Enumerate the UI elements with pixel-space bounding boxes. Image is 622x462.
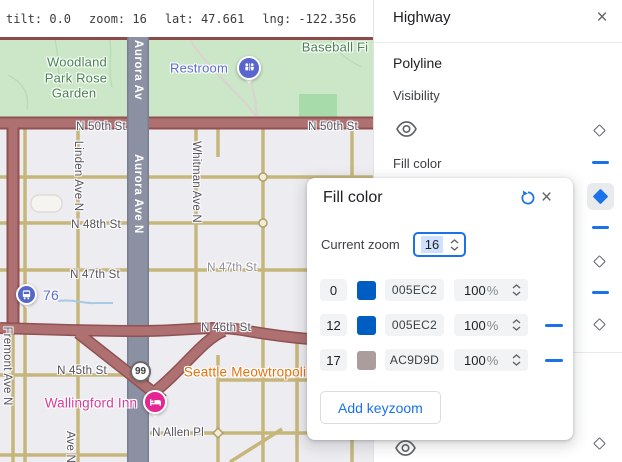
street-label-n50th-right: N 50th St <box>308 121 358 133</box>
opacity-value[interactable]: 100 <box>464 283 486 298</box>
dialog-title: Fill color <box>323 189 517 207</box>
highway-99-shield: 99 <box>130 361 151 382</box>
highway-99-number: 99 <box>135 366 146 377</box>
status-lng: lng: -122.356 <box>262 12 356 26</box>
street-label-n48th: N 48th St <box>71 219 121 231</box>
fill-color-dialog: Fill color × Current zoom 16 <box>307 178 573 440</box>
visibility-eye-icon-bottom[interactable] <box>393 439 417 459</box>
polyline-section-label: Polyline <box>393 55 442 71</box>
visibility-label: Visibility <box>393 88 440 103</box>
color-swatch[interactable] <box>357 316 376 335</box>
keyzoom-dash-icon[interactable] <box>592 291 609 294</box>
opacity-value[interactable]: 100 <box>464 353 486 368</box>
chevron-down-icon[interactable] <box>512 361 521 366</box>
street-label-n-allen: N Allen Pl <box>152 427 204 439</box>
fill-color-label: Fill color <box>393 156 441 171</box>
add-keyzoom-button[interactable]: Add keyzoom <box>320 391 441 424</box>
hex-value-chip[interactable]: 005EC2 <box>385 314 444 336</box>
street-label-ave-n: Ave N <box>64 431 76 462</box>
chevron-up-icon[interactable] <box>512 354 521 359</box>
restroom-icon <box>237 56 261 80</box>
panel-header-divider <box>374 42 622 43</box>
opacity-chip[interactable]: 100 % <box>454 349 528 371</box>
status-zoom: zoom: 16 <box>89 12 147 26</box>
street-label-n47th-right: N 47th St <box>207 262 257 274</box>
hex-value-chip[interactable]: 005EC2 <box>385 279 444 301</box>
keyzoom-rows: 0 005EC2 100 % 12 005EC2 <box>320 279 563 384</box>
remove-keyzoom-button[interactable] <box>545 324 563 327</box>
keyzoom-level-chip[interactable]: 17 <box>320 349 347 371</box>
bus-icon <box>16 284 37 305</box>
hex-value-chip[interactable]: AC9D9D <box>385 349 444 371</box>
panel-close-icon[interactable]: × <box>590 6 614 30</box>
keyframe-diamond-icon[interactable] <box>593 437 606 450</box>
street-label-aurora-mid: Aurora Ave N <box>132 154 144 234</box>
street-label-n46th: N 46th St <box>201 322 251 334</box>
street-label-whitman: Whitman Ave N <box>190 141 202 223</box>
current-zoom-row: Current zoom 16 <box>321 232 466 257</box>
keyframe-diamond-icon[interactable] <box>593 124 606 137</box>
current-zoom-label: Current zoom <box>321 237 400 252</box>
map-style-editor: tilt: 0.0 zoom: 16 lat: 47.661 lng: -122… <box>0 0 622 462</box>
street-label-n47th-left: N 47th St <box>70 269 120 281</box>
street-label-aurora-top: Aurora Av <box>132 40 144 100</box>
percent-sign: % <box>487 283 499 298</box>
status-lat: lat: 47.661 <box>165 12 244 26</box>
keyzoom-dash-icon[interactable] <box>592 226 609 229</box>
bed-icon <box>143 390 167 414</box>
color-swatch[interactable] <box>357 351 376 370</box>
restroom-pin[interactable] <box>237 56 261 80</box>
percent-sign: % <box>487 318 499 333</box>
keyzoom-level-chip[interactable]: 0 <box>320 279 347 301</box>
opacity-value[interactable]: 100 <box>464 318 486 333</box>
street-label-linden: Linden Ave N <box>72 141 84 212</box>
dialog-header: Fill color × <box>307 178 573 218</box>
chevron-up-icon[interactable] <box>450 239 459 244</box>
keyframe-diamond-icon[interactable] <box>593 255 606 268</box>
park-label-line2: Park Rose <box>45 71 108 86</box>
percent-sign: % <box>487 353 499 368</box>
chevron-up-icon[interactable] <box>512 319 521 324</box>
keyzoom-row: 0 005EC2 100 % <box>320 279 563 301</box>
opacity-chip[interactable]: 100 % <box>454 314 528 336</box>
current-zoom-value[interactable]: 16 <box>421 236 443 253</box>
park-label-line3: Garden <box>52 86 97 101</box>
dialog-close-icon[interactable]: × <box>539 187 561 209</box>
camera-status-bar: tilt: 0.0 zoom: 16 lat: 47.661 lng: -122… <box>0 0 373 37</box>
keyzoom-level-chip[interactable]: 12 <box>320 314 347 336</box>
chevron-down-icon[interactable] <box>450 246 459 251</box>
keyframe-diamond-icon[interactable] <box>593 318 606 331</box>
cat-cafe-label: Seattle Meowtropoli <box>184 365 306 380</box>
street-label-fremont: Fremont Ave N <box>1 326 13 405</box>
park-label-line1: Woodland <box>47 55 107 70</box>
reset-icon[interactable] <box>517 187 539 209</box>
opacity-chip[interactable]: 100 % <box>454 279 528 301</box>
chevron-down-icon[interactable] <box>512 291 521 296</box>
street-label-n45th: N 45th St <box>57 365 107 377</box>
color-swatch[interactable] <box>357 281 376 300</box>
restroom-label: Restroom <box>170 61 228 76</box>
keyzoom-dash-icon[interactable] <box>592 161 609 164</box>
bus-route-label: 76 <box>43 287 59 303</box>
chevron-up-icon[interactable] <box>512 284 521 289</box>
remove-keyzoom-button[interactable] <box>545 359 563 362</box>
chevron-down-icon[interactable] <box>512 326 521 331</box>
keyzoom-row: 17 AC9D9D 100 % <box>320 349 563 371</box>
bus-stop-pin[interactable] <box>16 284 37 305</box>
visibility-eye-icon[interactable] <box>394 120 418 140</box>
current-zoom-stepper[interactable]: 16 <box>413 232 466 257</box>
street-label-n50th-left: N 50th St <box>76 121 126 133</box>
baseball-field-label: Baseball Fi <box>302 40 369 55</box>
keyframe-selected-icon[interactable] <box>587 183 614 210</box>
hotel-pin[interactable] <box>143 390 167 414</box>
panel-title: Highway <box>393 9 451 26</box>
hotel-label: Wallingford Inn <box>45 396 138 411</box>
status-tilt: tilt: 0.0 <box>6 12 71 26</box>
keyzoom-row: 12 005EC2 100 % <box>320 314 563 336</box>
